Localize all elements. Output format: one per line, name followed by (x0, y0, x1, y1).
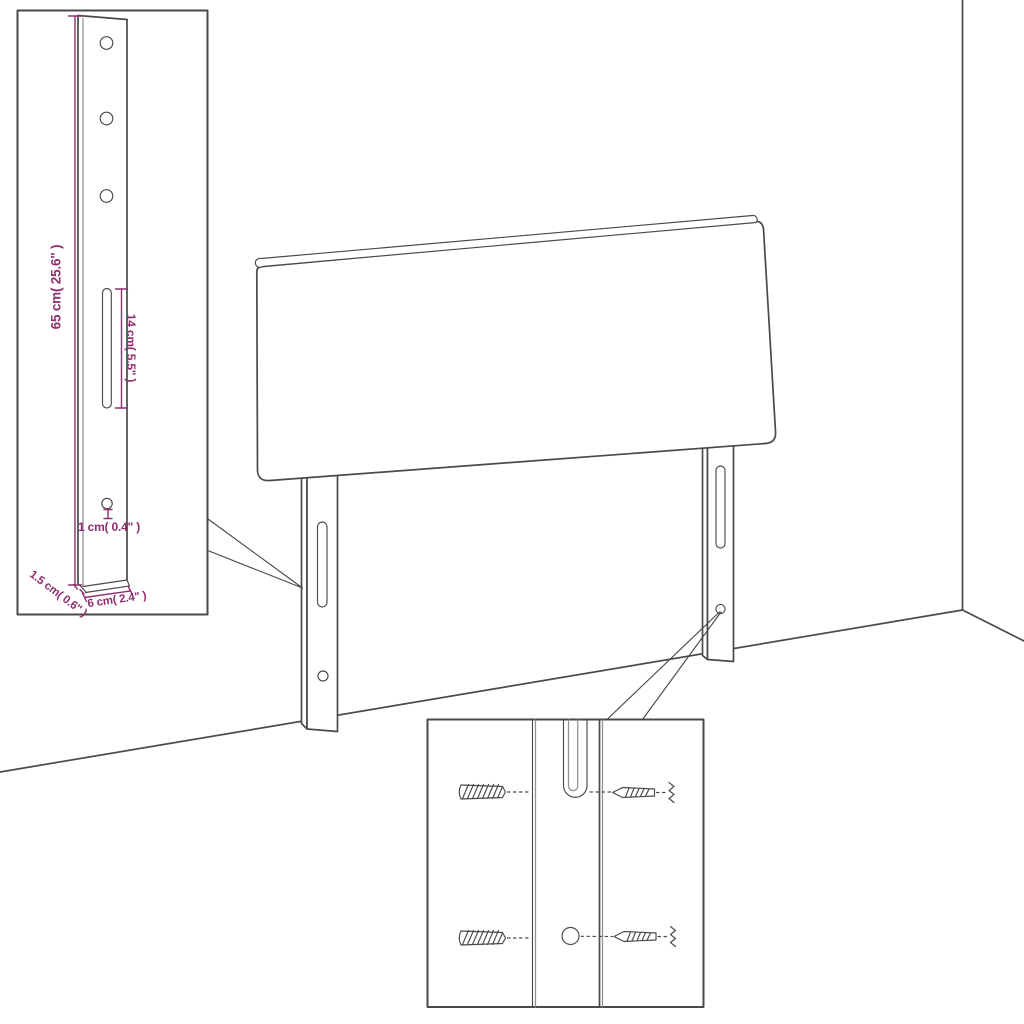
inset-mounting-detail (428, 720, 704, 1008)
diagram-linework (0, 0, 1024, 1024)
floor-line-left (0, 610, 963, 772)
hole-diameter-dimension-label: 1 cm( 0.4" ) (78, 520, 140, 534)
leg-foot-bottom-edge (86, 580, 130, 593)
leg-top-edge (78, 16, 127, 20)
headboard-panel (255, 215, 775, 480)
slot-length-dimension-label: 14 cm( 5.5" ) (124, 314, 138, 382)
leg-strip-closeup (533, 720, 603, 1007)
leg-foot-front-edge (83, 580, 127, 587)
left-leg-front-face (307, 462, 338, 732)
leg-hole-lower (100, 190, 113, 203)
headboard-right-leg (703, 442, 734, 662)
product-assembly-diagram: 65 cm( 25.6" ) 14 cm( 5.5" ) 1 cm( 0.4" … (0, 0, 1024, 1024)
inset-mounting-frame (428, 720, 704, 1008)
headboard-left-leg (302, 462, 338, 732)
hole-closeup (562, 928, 579, 945)
slot-closeup-outer (564, 720, 588, 797)
right-leg-front-face (708, 442, 734, 662)
wall-plug-lower (459, 931, 531, 946)
screw-lower (614, 927, 676, 947)
wall-plug-upper (459, 785, 531, 800)
height-dimension-label: 65 cm( 25.6" ) (49, 245, 64, 330)
floor-line-right (963, 610, 1024, 641)
slot-closeup-inner (569, 720, 578, 791)
leg-hole-top (100, 37, 113, 50)
leg-small-hole (102, 498, 112, 508)
leg-slot-enlarged (103, 289, 112, 409)
screw-upper (613, 783, 675, 803)
leader-lines-leg-detail (208, 519, 303, 588)
leg-hole-middle (100, 112, 113, 125)
callout-leaders (208, 519, 721, 720)
